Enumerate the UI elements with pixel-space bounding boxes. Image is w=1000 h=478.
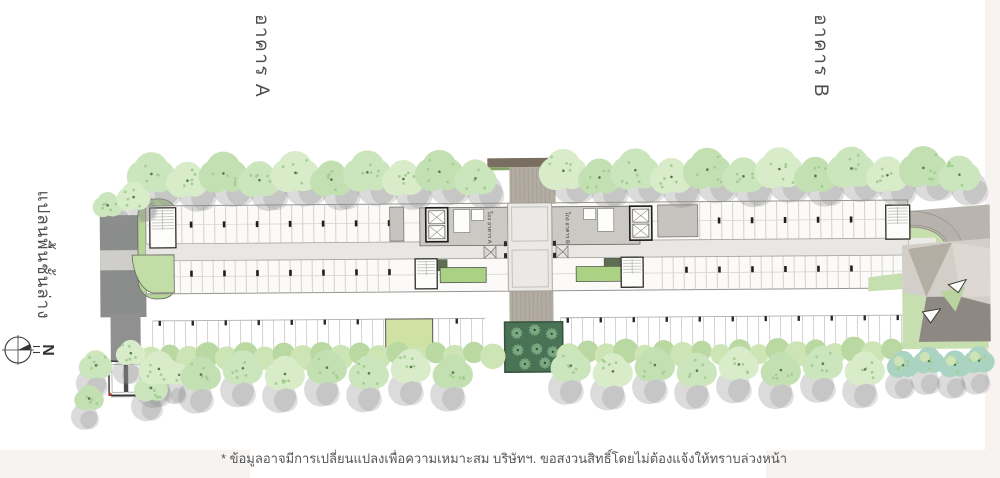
column-mark: [784, 266, 787, 272]
column-mark: [289, 221, 292, 227]
site-plan-canvas: โถง อาคาร A โถง อาคาร B อาคาร A อาคาร B …: [0, 0, 1000, 478]
column-mark: [751, 217, 754, 223]
column-mark: [699, 317, 701, 322]
site-plan: โถง อาคาร A โถง อาคาร B: [69, 146, 995, 430]
north-needle-icon: [18, 344, 30, 350]
footer-disclaimer: * ข้อมูลอาจมีการเปลี่ยนแปลงเพื่อความเหมา…: [221, 449, 787, 467]
column-mark: [324, 320, 326, 325]
column-mark: [831, 316, 833, 321]
column-mark: [718, 218, 721, 224]
column-mark: [223, 221, 226, 227]
column-mark: [718, 267, 721, 273]
stair-room-a: [415, 259, 437, 289]
column-mark: [567, 318, 569, 323]
elevator-bank-a: [426, 208, 448, 242]
north-arrow: N: [2, 335, 56, 365]
planter-b: [576, 266, 622, 281]
lobby-a-label: โถง อาคาร A: [486, 211, 494, 244]
elevator-bank-b: [630, 206, 652, 240]
column-mark: [159, 321, 161, 326]
column-mark: [633, 317, 635, 322]
ground-floor-plan-page: โถง อาคาร A โถง อาคาร B อาคาร A อาคาร B …: [0, 0, 1000, 478]
column-mark: [190, 222, 193, 228]
column-mark: [388, 269, 391, 275]
footer-strip-left: [0, 450, 250, 478]
column-mark: [355, 220, 358, 226]
column-mark: [256, 270, 259, 276]
stair-room-b: [621, 257, 643, 287]
column-mark: [223, 270, 226, 276]
plan-title-label: แปลนพื้นชั้นล่าง: [34, 190, 56, 319]
building-a-label: อาคาร A: [251, 14, 272, 98]
column-mark: [817, 217, 820, 223]
column-mark: [322, 221, 325, 227]
column-mark: [190, 271, 193, 277]
column-mark: [291, 320, 293, 325]
column-mark: [765, 316, 767, 321]
column-mark: [685, 267, 688, 273]
column-mark: [192, 321, 194, 326]
column-mark: [850, 265, 853, 271]
column-mark: [256, 221, 259, 227]
column-mark: [289, 270, 292, 276]
column-mark: [798, 316, 800, 321]
footer-strip-right: [766, 450, 1000, 478]
column-mark: [784, 217, 787, 223]
drop-off-court: [508, 203, 553, 291]
column-mark: [225, 320, 227, 325]
lobby-b-label: โถง อาคาร B: [564, 211, 572, 244]
column-mark: [456, 319, 458, 324]
planter-a: [440, 267, 486, 282]
stair-room-east: [886, 205, 910, 239]
tree-icon: [79, 350, 113, 379]
column-mark: [666, 317, 668, 322]
column-mark: [600, 317, 602, 322]
hedge-bush: [480, 343, 506, 369]
service-room-b: [658, 205, 698, 237]
column-mark: [322, 270, 325, 276]
column-mark: [751, 266, 754, 272]
building-b-label: อาคาร B: [810, 14, 831, 98]
column-mark: [850, 216, 853, 222]
column-mark: [355, 269, 358, 275]
column-mark: [258, 320, 260, 325]
column-mark: [732, 316, 734, 321]
column-mark: [357, 319, 359, 324]
entrance-driveway-bottom: [509, 291, 553, 322]
column-mark: [864, 315, 866, 320]
column-mark: [817, 266, 820, 272]
north-letter: N: [39, 344, 56, 356]
column-mark: [897, 315, 899, 320]
